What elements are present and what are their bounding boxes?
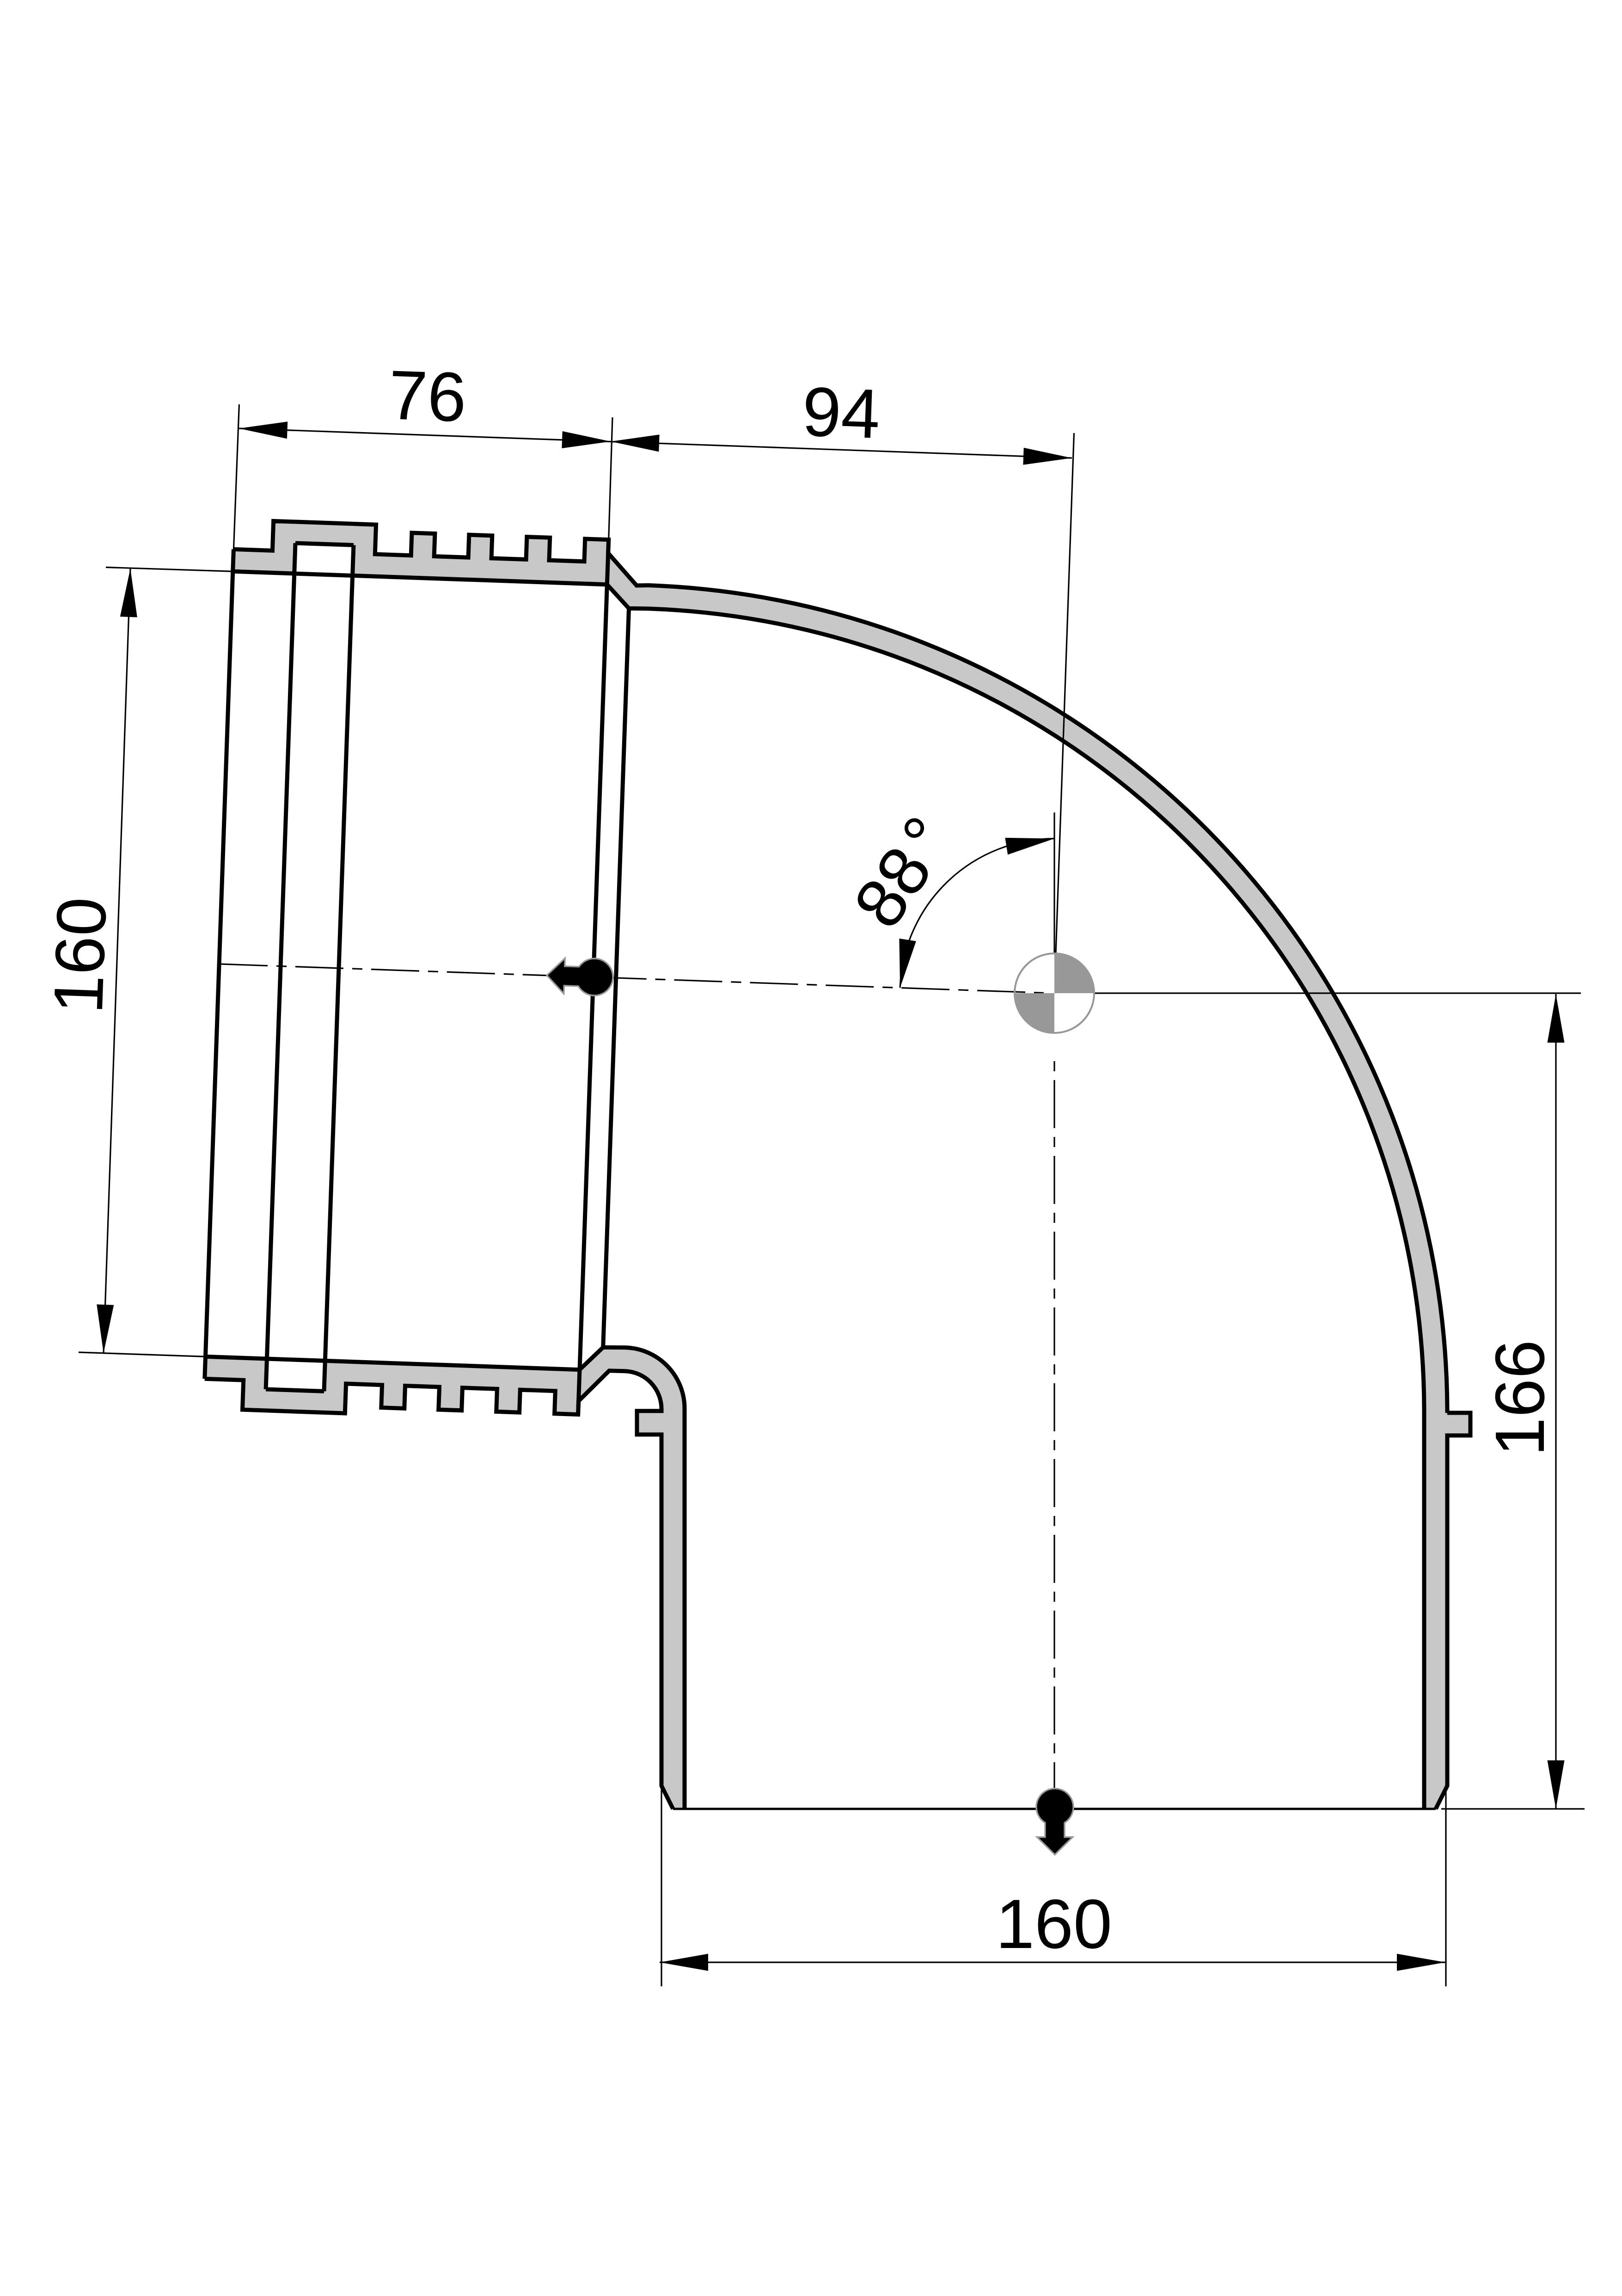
- svg-text:160: 160: [39, 896, 121, 1015]
- svg-text:94: 94: [801, 372, 881, 453]
- svg-text:160: 160: [996, 1885, 1112, 1963]
- svg-text:76: 76: [387, 355, 468, 436]
- svg-text:166: 166: [1481, 1340, 1559, 1456]
